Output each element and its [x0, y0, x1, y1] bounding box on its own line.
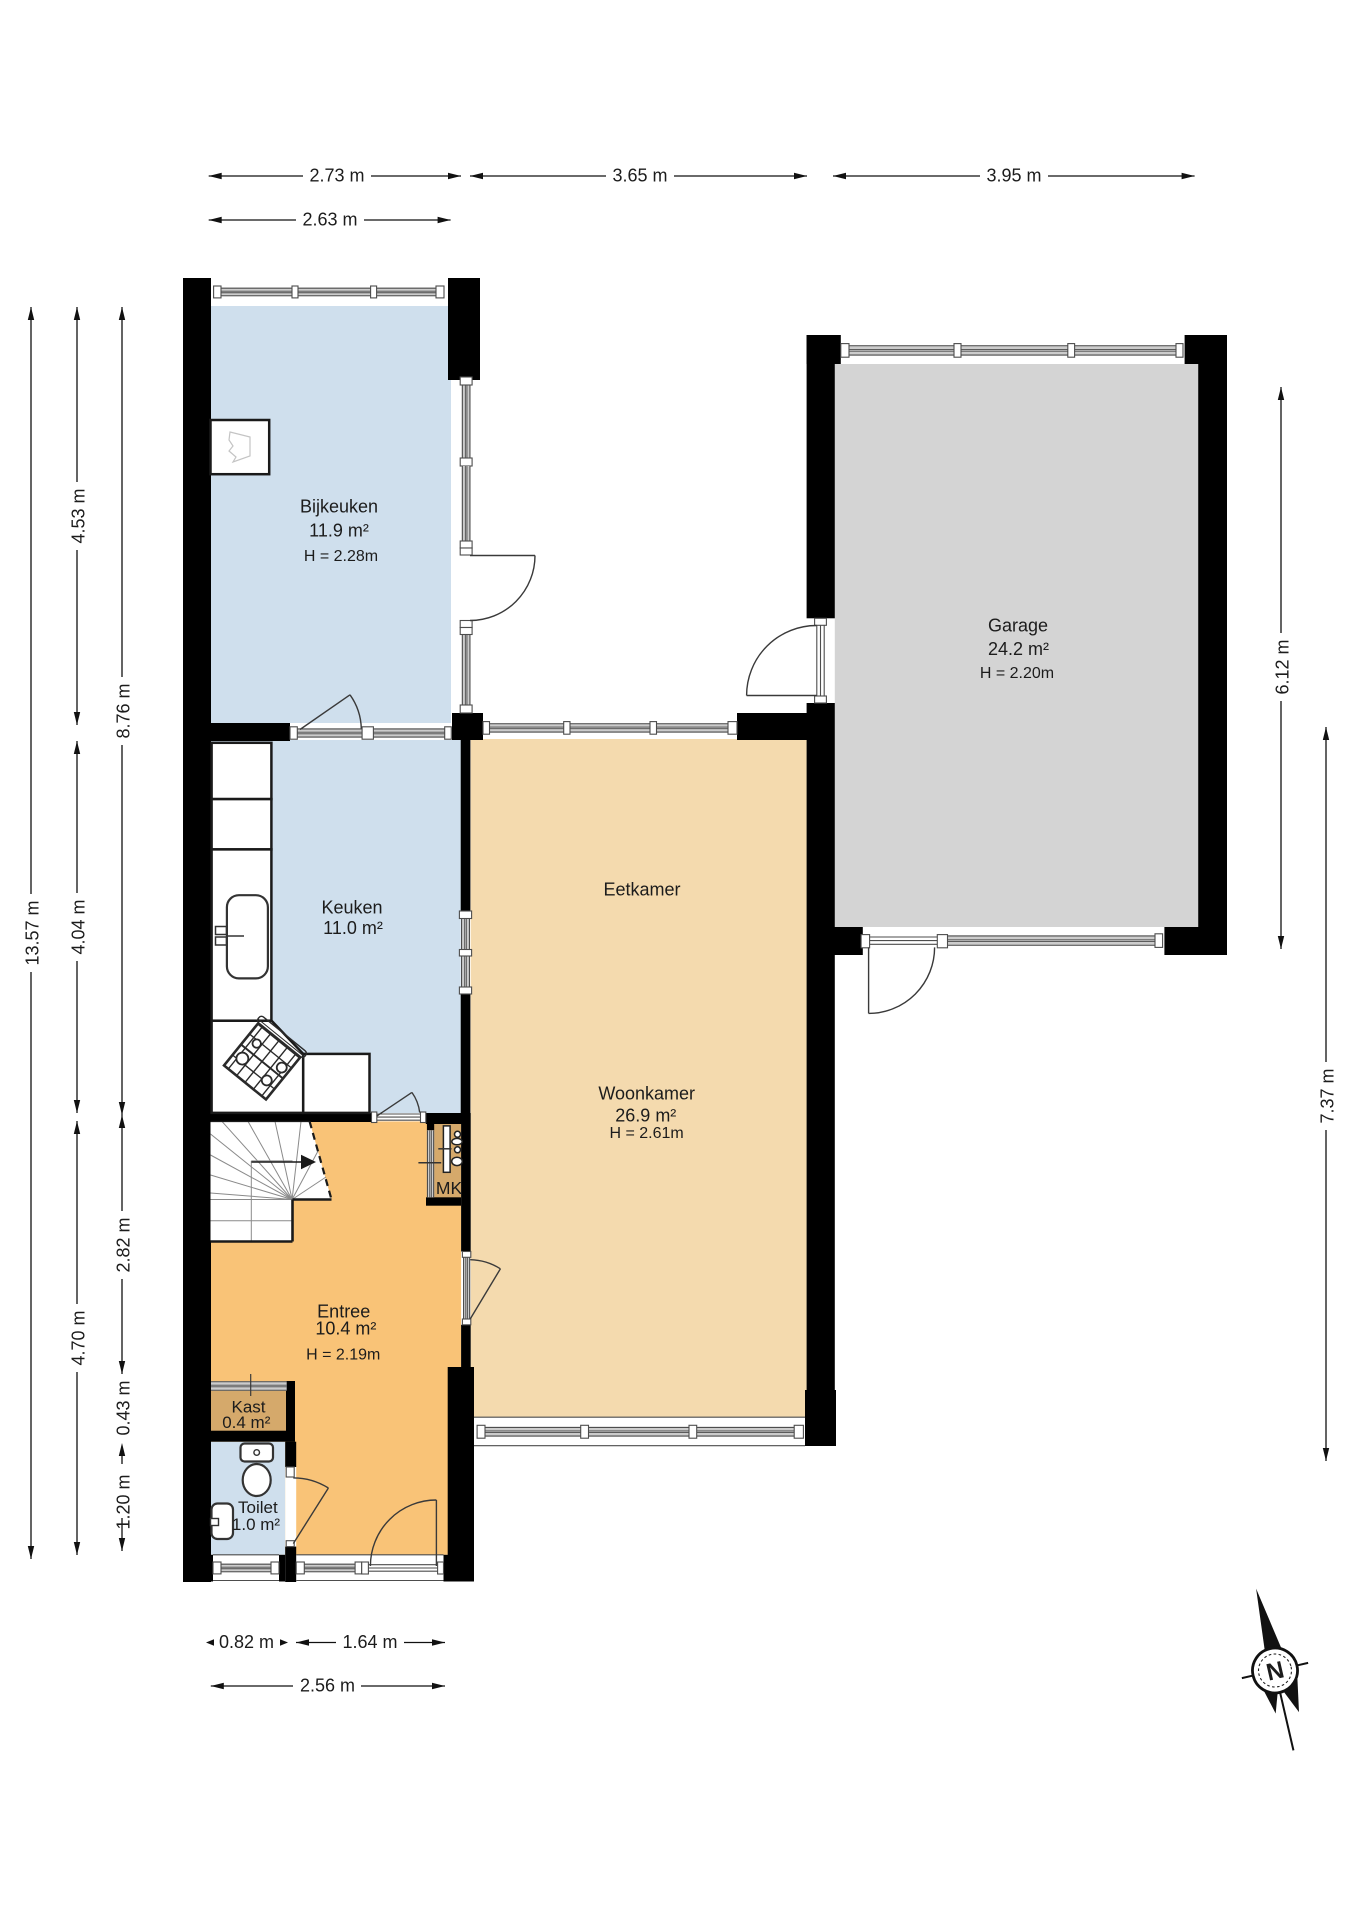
- svg-text:2.73 m: 2.73 m: [309, 166, 364, 186]
- svg-text:2.82 m: 2.82 m: [114, 1217, 134, 1272]
- svg-text:6.12 m: 6.12 m: [1273, 639, 1293, 694]
- svg-text:H = 2.28m: H = 2.28m: [304, 548, 378, 565]
- svg-text:4.53 m: 4.53 m: [69, 488, 89, 543]
- svg-text:24.2 m²: 24.2 m²: [988, 639, 1049, 659]
- svg-text:1.20 m: 1.20 m: [114, 1474, 134, 1529]
- svg-text:Bijkeuken: Bijkeuken: [300, 497, 378, 517]
- svg-text:11.9 m²: 11.9 m²: [309, 521, 369, 541]
- svg-text:13.57 m: 13.57 m: [23, 900, 43, 965]
- svg-text:8.76 m: 8.76 m: [114, 683, 134, 738]
- svg-text:7.37 m: 7.37 m: [1318, 1068, 1338, 1123]
- svg-text:Garage: Garage: [988, 616, 1048, 636]
- svg-text:Eetkamer: Eetkamer: [603, 880, 680, 900]
- svg-text:Keuken: Keuken: [321, 898, 382, 918]
- svg-text:Woonkamer: Woonkamer: [598, 1084, 695, 1104]
- svg-text:11.0 m²: 11.0 m²: [323, 918, 383, 938]
- svg-text:MK: MK: [436, 1178, 463, 1198]
- svg-text:2.56 m: 2.56 m: [300, 1676, 355, 1696]
- svg-text:1.0 m²: 1.0 m²: [232, 1515, 281, 1534]
- svg-text:4.70 m: 4.70 m: [69, 1310, 89, 1365]
- svg-text:3.65 m: 3.65 m: [612, 166, 667, 186]
- svg-text:0.82 m: 0.82 m: [219, 1632, 274, 1652]
- svg-text:4.04 m: 4.04 m: [69, 899, 89, 954]
- svg-text:10.4 m²: 10.4 m²: [315, 1319, 376, 1339]
- svg-text:1.64 m: 1.64 m: [342, 1632, 397, 1652]
- svg-text:H = 2.61m: H = 2.61m: [609, 1125, 683, 1142]
- svg-text:3.95 m: 3.95 m: [986, 166, 1041, 186]
- svg-text:H = 2.20m: H = 2.20m: [980, 665, 1054, 682]
- svg-text:2.63 m: 2.63 m: [302, 210, 357, 230]
- svg-text:0.4 m²: 0.4 m²: [222, 1413, 271, 1432]
- svg-text:H = 2.19m: H = 2.19m: [306, 1347, 380, 1364]
- svg-text:0.43 m: 0.43 m: [114, 1380, 134, 1435]
- svg-text:26.9 m²: 26.9 m²: [615, 1106, 676, 1126]
